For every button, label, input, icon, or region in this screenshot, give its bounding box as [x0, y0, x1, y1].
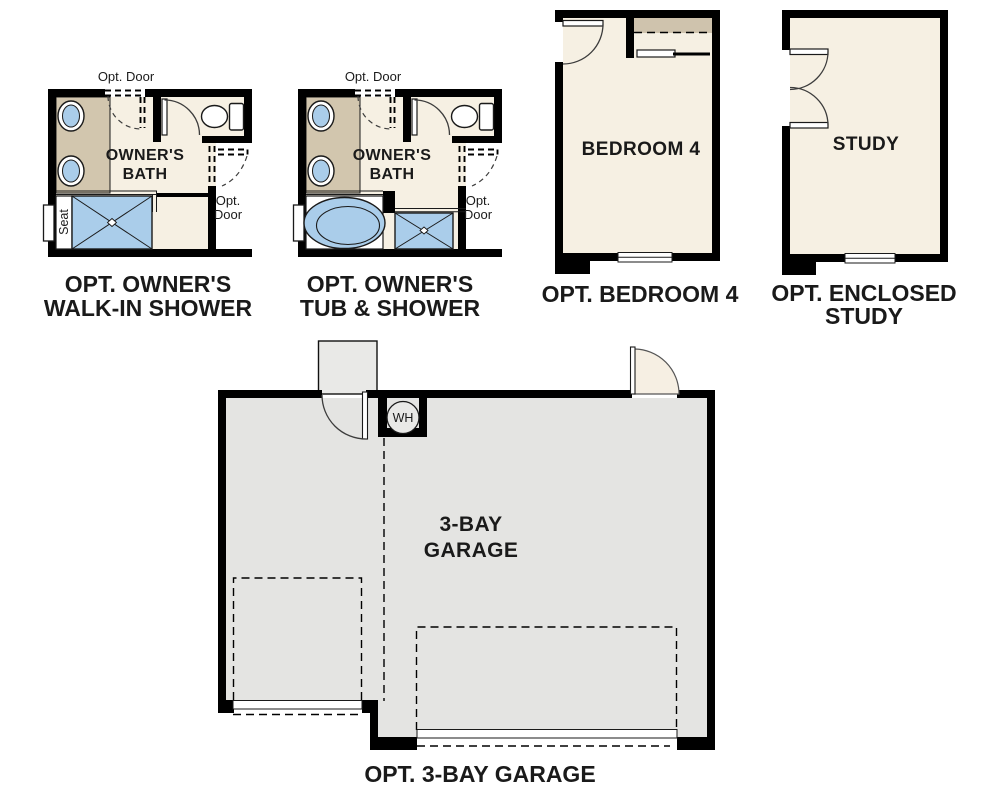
sink	[58, 101, 84, 131]
plan-study: STUDY OPT. ENCLOSED STUDY	[771, 10, 956, 329]
water-heater-label: WH	[393, 411, 414, 425]
opt-door-side-label: Opt.	[466, 193, 491, 208]
opt-door-side-label: Door	[464, 207, 493, 222]
plan-caption: WALK-IN SHOWER	[44, 295, 253, 321]
plan-walk-in-shower: Opt. Door OWNER'S BATH Opt. Door Seat OP…	[44, 69, 253, 321]
room-label: OWNER'S	[353, 147, 432, 164]
room-label: 3-BAY	[439, 513, 502, 536]
bypass-door	[637, 50, 675, 57]
window	[845, 254, 895, 264]
wall-niche	[294, 205, 305, 241]
bypass-door	[673, 53, 710, 56]
garage-door-double	[417, 730, 677, 747]
shower-pan	[395, 213, 453, 249]
plan-caption: OPT. 3-BAY GARAGE	[364, 761, 595, 787]
sink	[58, 156, 84, 186]
floorplan-sheet: Opt. Door OWNER'S BATH Opt. Door Seat OP…	[0, 0, 1000, 800]
plan-caption: OPT. BEDROOM 4	[542, 281, 739, 307]
plan-caption: STUDY	[825, 303, 903, 329]
plan-caption: OPT. OWNER'S	[65, 271, 231, 297]
room-label: STUDY	[833, 134, 899, 155]
window	[618, 253, 672, 263]
room-label: BATH	[123, 166, 168, 183]
room-label: BATH	[370, 166, 415, 183]
side-door	[631, 347, 680, 394]
room-label: GARAGE	[424, 539, 519, 562]
optional-door-side	[210, 146, 248, 186]
wall-niche	[44, 205, 55, 241]
plan-tub-shower: Opt. Door OWNER'S BATH Opt. Door OPT. OW…	[294, 69, 503, 321]
bathtub	[304, 196, 385, 249]
water-heater: WH	[387, 402, 419, 434]
sink	[308, 101, 334, 131]
plan-garage: WH 3-BAY GARAGE OPT. 3-BAY GARAGE	[218, 341, 715, 787]
plan-caption: OPT. OWNER'S	[307, 271, 473, 297]
garage-floor	[226, 398, 707, 737]
plan-bedroom4: BEDROOM 4 OPT. BEDROOM 4	[542, 10, 739, 307]
floorplan-canvas: Opt. Door OWNER'S BATH Opt. Door Seat OP…	[0, 0, 1000, 800]
shower-pan	[72, 196, 152, 249]
opt-door-side-label: Door	[214, 207, 243, 222]
opt-door-side-label: Opt.	[216, 193, 241, 208]
opt-door-top-label: Opt. Door	[98, 69, 155, 84]
plan-caption: TUB & SHOWER	[300, 295, 481, 321]
room-label: OWNER'S	[106, 147, 185, 164]
optional-door-side	[460, 146, 498, 186]
sink	[308, 156, 334, 186]
room-label: BEDROOM 4	[582, 139, 701, 160]
entry-landing	[319, 341, 378, 394]
seat-label: Seat	[57, 209, 71, 235]
garage-door-single	[233, 701, 362, 715]
opt-door-top-label: Opt. Door	[345, 69, 402, 84]
